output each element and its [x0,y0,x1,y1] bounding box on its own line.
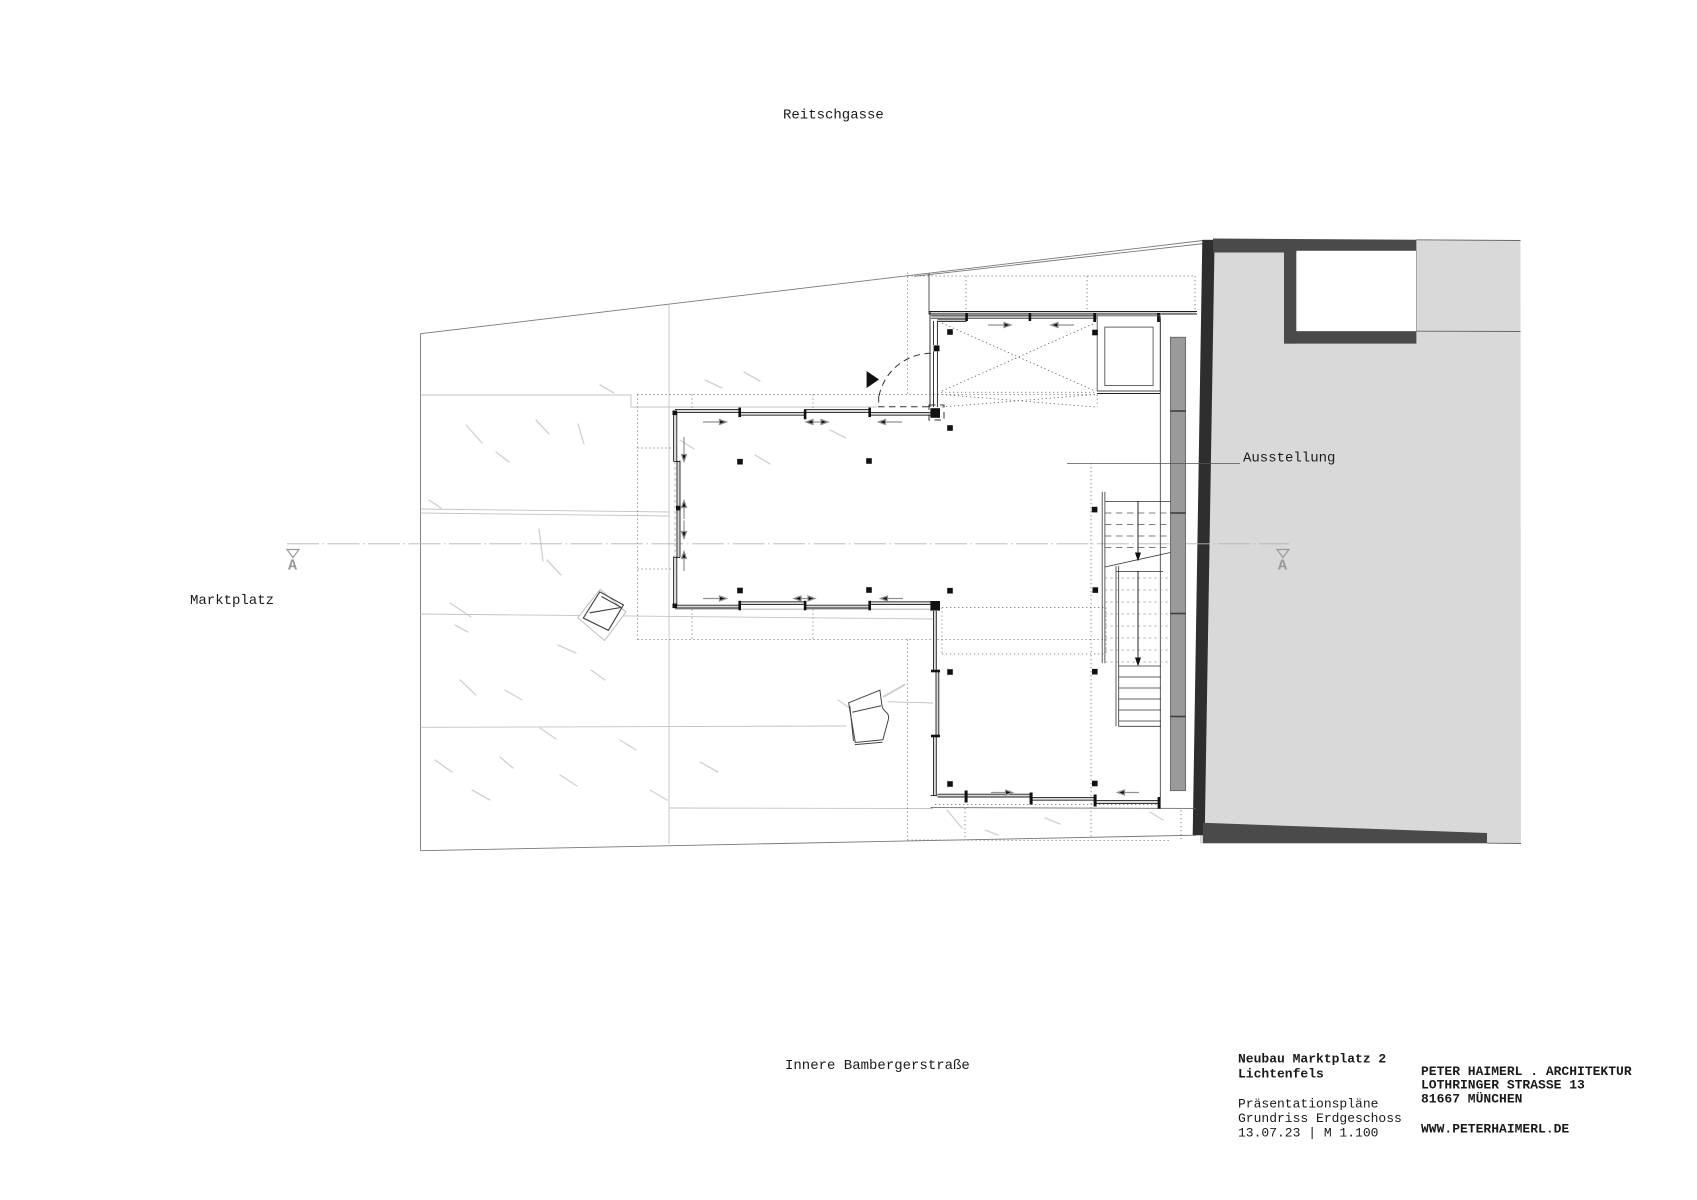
svg-text:Innere Bambergerstraße: Innere Bambergerstraße [785,1058,970,1074]
svg-text:Ausstellung: Ausstellung [1243,451,1335,467]
svg-text:Präsentationspläne: Präsentationspläne [1238,1096,1378,1111]
svg-text:Marktplatz: Marktplatz [190,593,274,609]
svg-text:A: A [288,558,297,575]
svg-text:81667 MÜNCHEN: 81667 MÜNCHEN [1421,1090,1522,1106]
svg-text:Lichtenfels: Lichtenfels [1238,1066,1324,1081]
svg-text:Grundriss Erdgeschoss: Grundriss Erdgeschoss [1238,1111,1402,1126]
svg-text:WWW.PETERHAIMERL.DE: WWW.PETERHAIMERL.DE [1421,1122,1569,1137]
svg-text:A: A [1278,558,1287,575]
svg-text:Reitschgasse: Reitschgasse [783,108,884,124]
svg-text:Neubau Marktplatz 2: Neubau Marktplatz 2 [1238,1052,1386,1067]
svg-text:PETER HAIMERL . ARCHITEKTUR: PETER HAIMERL . ARCHITEKTUR [1421,1064,1632,1079]
svg-text:13.07.23 | M 1.100: 13.07.23 | M 1.100 [1238,1126,1378,1141]
